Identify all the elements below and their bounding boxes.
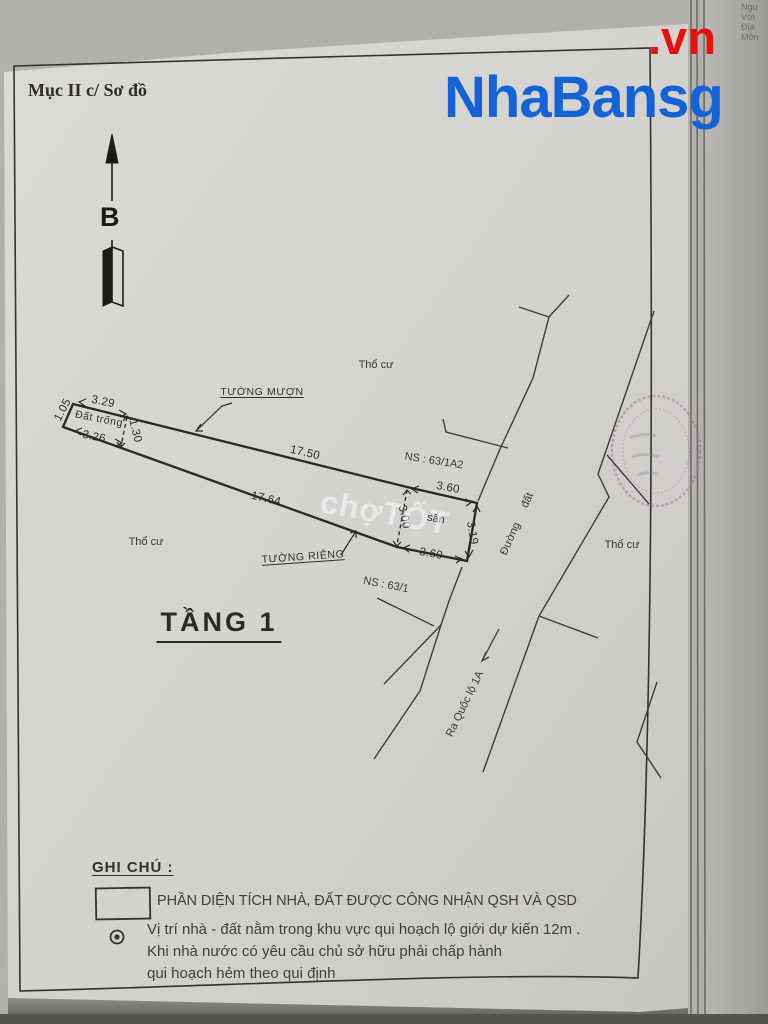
north-label: B (100, 202, 120, 233)
fragment-line: Ngư (741, 2, 768, 12)
fragment-line: Địa (741, 22, 768, 32)
background-right-strip (706, 0, 768, 1024)
floor-title: TẦNG 1 (156, 607, 281, 643)
corner-text-fragments: Ngư Với Địa Môn (741, 2, 768, 42)
legend-note-line3: qui hoạch hẻm theo qui định (147, 965, 335, 982)
watermark-vn-suffix: .vn (648, 10, 716, 65)
section-title: Mục II c/ Sơ đồ (28, 80, 147, 101)
watermark-brand: NhaBansg (444, 64, 723, 131)
legend-item-area: PHẦN DIỆN TÍCH NHÀ, ĐẤT ĐƯỢC CÔNG NHẬN Q… (157, 893, 577, 909)
fragment-line: Môn (741, 32, 768, 42)
fragment-line: Với (741, 12, 768, 22)
legend-note-line1: Vị trí nhà - đất nằm trong khu vực qui h… (147, 921, 580, 938)
label-tho-cu-top: Thổ cư (359, 359, 394, 371)
label-tuong-muon: TƯỜNG MƯỢN (220, 386, 303, 398)
bottom-edge-shadow (0, 1014, 768, 1024)
label-tho-cu-right: Thổ cư (605, 539, 640, 551)
scanned-survey-document: Mục II c/ Sơ đồ B TƯỜNG MƯỢN TƯỜNG RIÊNG… (0, 0, 768, 1024)
legend-title: GHI CHÚ : (92, 859, 174, 876)
label-tho-cu-left: Thổ cư (129, 536, 164, 548)
legend-note-line2: Khi nhà nước có yêu cầu chủ sở hữu phải … (147, 943, 502, 960)
